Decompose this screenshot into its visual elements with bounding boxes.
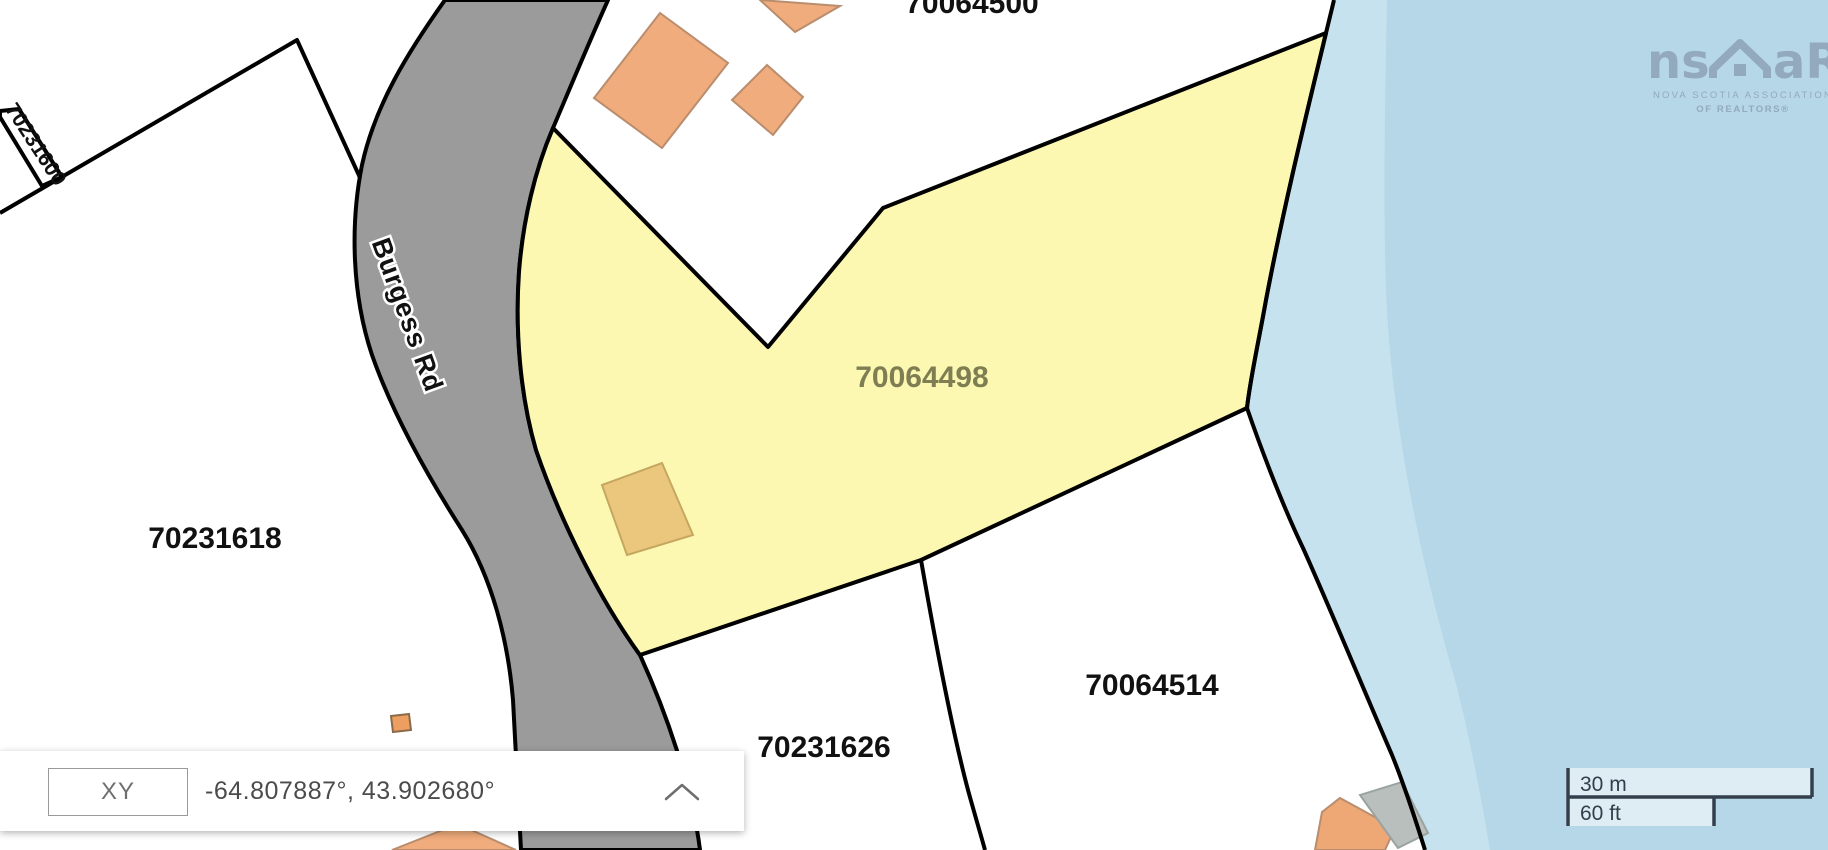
scale-imperial-label: 60 ft xyxy=(1580,802,1621,825)
nsar-logo: ns aR NOVA SCOTIA ASSOCIATION OF REALTOR… xyxy=(1645,28,1828,120)
logo-subline1: NOVA SCOTIA ASSOCIATION xyxy=(1653,90,1828,101)
logo-brand-right: aR xyxy=(1773,34,1828,90)
coordinate-system-selector[interactable]: XY xyxy=(48,768,188,816)
map-canvas[interactable]: 70064498 70231618 70231626 70064514 7006… xyxy=(0,0,1828,850)
parcel-label: 70064514 xyxy=(1085,669,1219,702)
chevron-up-icon[interactable] xyxy=(660,780,704,804)
map-viewer: 70064498 70231618 70231626 70064514 7006… xyxy=(0,0,1828,850)
coordinate-readout: -64.807887°, 43.902680° xyxy=(205,751,495,831)
scale-bar: 30 m 60 ft xyxy=(1560,762,1822,839)
parcel-label: 70231626 xyxy=(757,731,890,764)
parcel-label: 70231618 xyxy=(148,522,281,555)
parcel-label: 70064498 xyxy=(855,361,988,394)
parcel-label: 70064500 xyxy=(905,0,1038,20)
house-icon xyxy=(1713,43,1767,78)
coordinate-panel: XY -64.807887°, 43.902680° xyxy=(0,751,744,831)
coordinate-system-label: XY xyxy=(101,778,135,806)
logo-subline2: OF REALTORS® xyxy=(1696,104,1789,115)
building-tiny-road xyxy=(391,714,411,732)
logo-brand-left: ns xyxy=(1647,34,1710,90)
scale-metric-label: 30 m xyxy=(1580,773,1627,796)
